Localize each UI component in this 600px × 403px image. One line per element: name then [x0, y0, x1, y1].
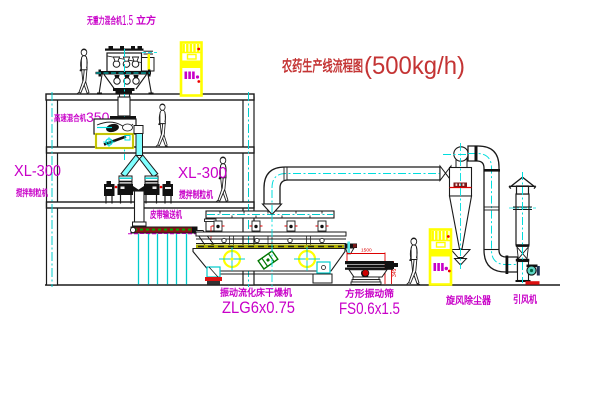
svg-text:XL-300: XL-300 [178, 165, 227, 182]
svg-text:XL-300: XL-300 [14, 163, 61, 180]
svg-text:高速混合机: 高速混合机 [54, 113, 86, 123]
svg-text:旋风除尘器: 旋风除尘器 [445, 294, 492, 307]
svg-text:1500: 1500 [361, 248, 372, 254]
svg-text:引风机: 引风机 [513, 293, 537, 306]
svg-text:ZLG6x0.75: ZLG6x0.75 [222, 299, 295, 317]
svg-text:搅拌制粒机: 搅拌制粒机 [16, 187, 48, 198]
svg-text:无重力混合机: 无重力混合机 [86, 15, 122, 27]
svg-text:FS0.6x1.5: FS0.6x1.5 [339, 300, 400, 318]
svg-text:农药生产线流程图: 农药生产线流程图 [281, 57, 363, 75]
svg-text:(500kg/h): (500kg/h) [364, 52, 465, 80]
svg-text:立方: 立方 [136, 14, 156, 27]
svg-text:方形振动筛: 方形振动筛 [345, 288, 394, 300]
svg-text:搅拌制粒机: 搅拌制粒机 [179, 189, 213, 201]
svg-text:振动流化床干燥机: 振动流化床干燥机 [220, 287, 292, 299]
svg-text:1.5: 1.5 [122, 12, 133, 29]
svg-text:皮带输送机: 皮带输送机 [149, 209, 182, 221]
